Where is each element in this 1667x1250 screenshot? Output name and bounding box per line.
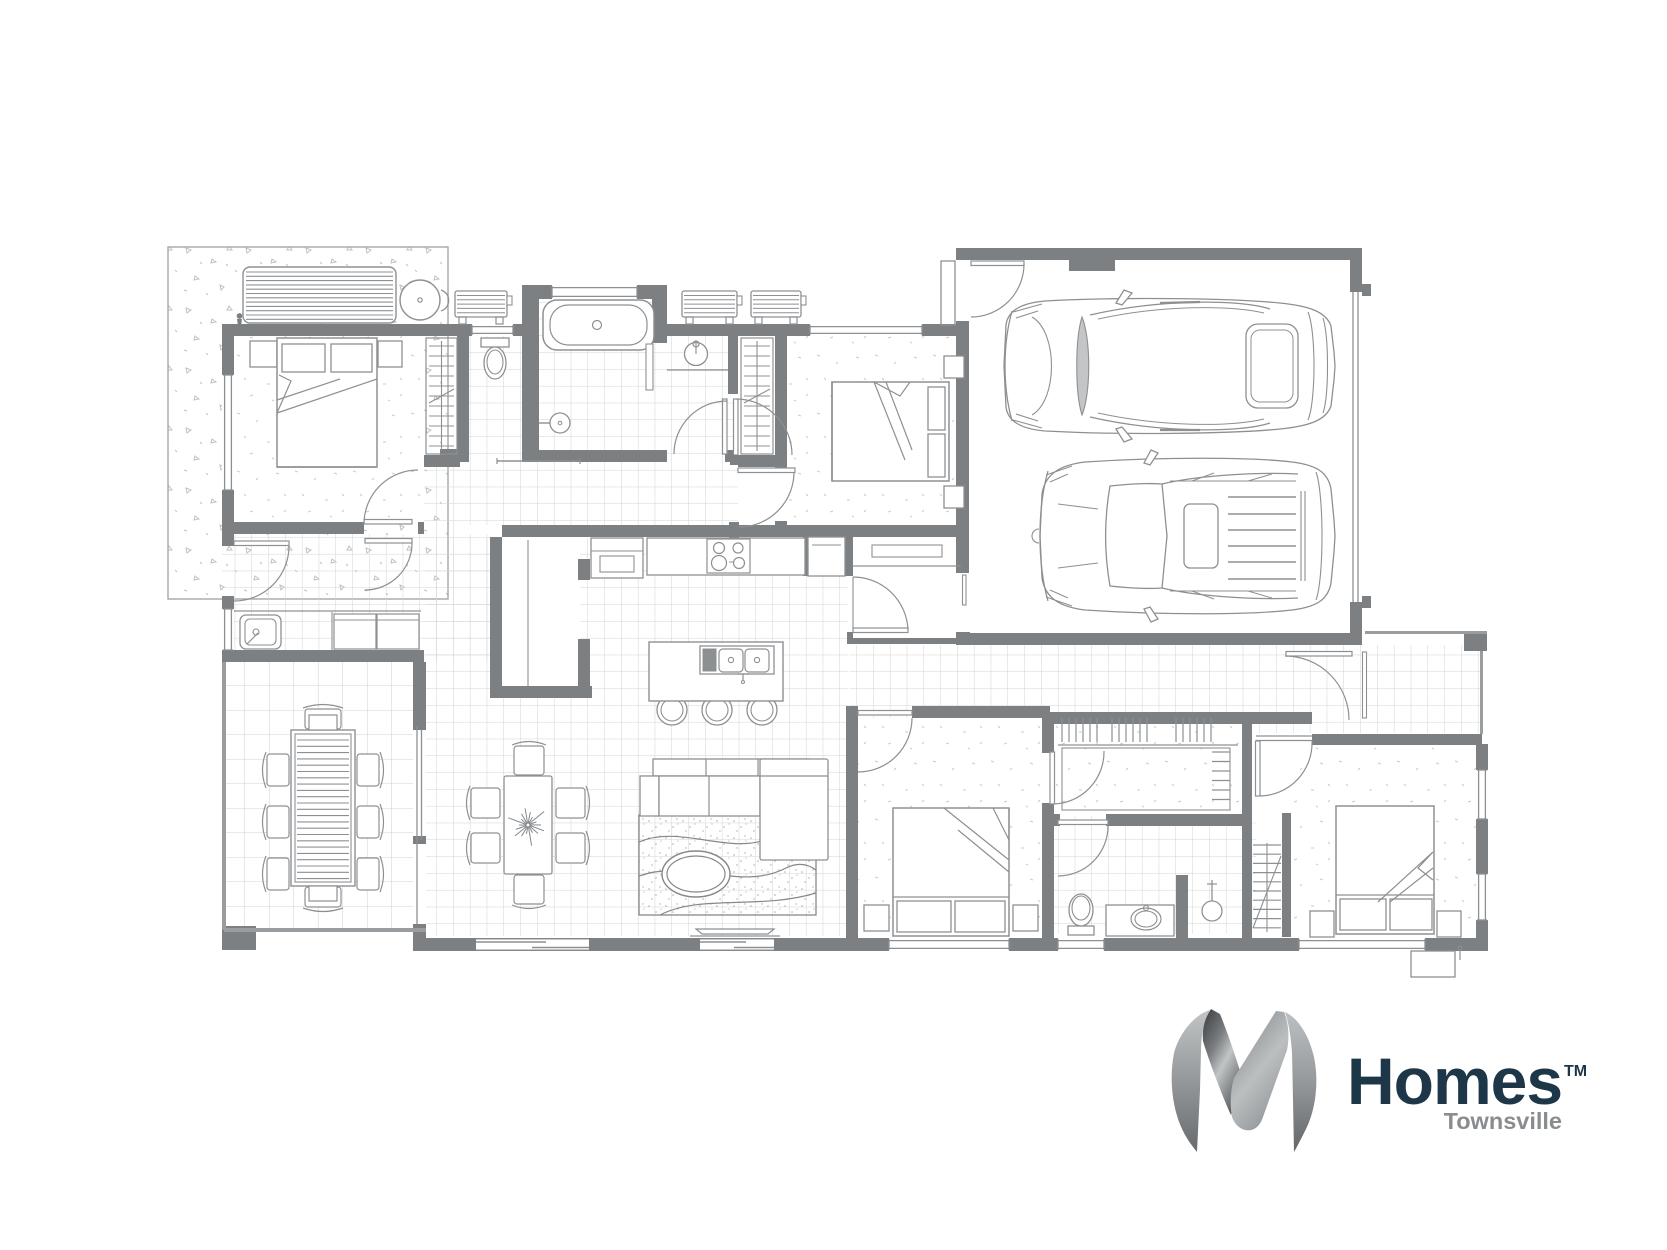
svg-text:Townsville: Townsville	[1444, 1108, 1562, 1134]
svg-text:TM: TM	[1564, 1063, 1587, 1080]
svg-text:Homes: Homes	[1347, 1044, 1562, 1118]
